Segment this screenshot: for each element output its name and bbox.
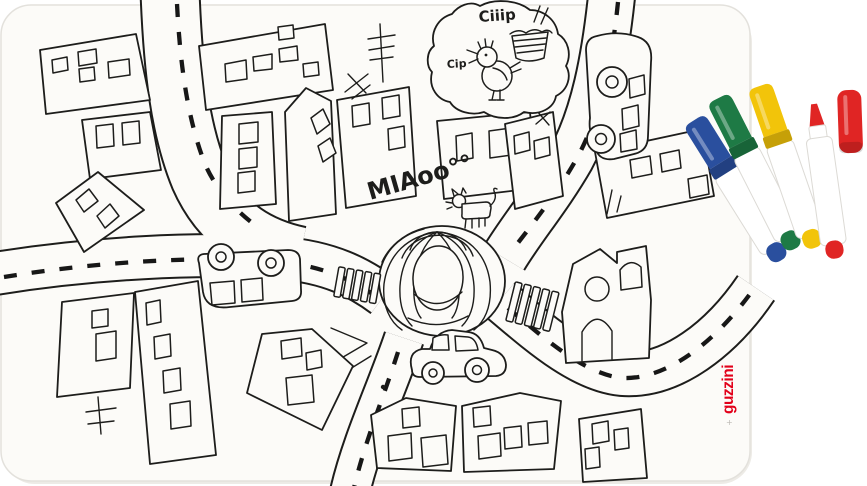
building bbox=[462, 393, 561, 472]
marker-tip bbox=[807, 103, 825, 127]
car-icon bbox=[586, 33, 651, 159]
building bbox=[579, 409, 647, 482]
marker-cap-red bbox=[837, 90, 863, 154]
house bbox=[562, 246, 651, 363]
product-photo: Ciiip Cip MIAoo°° guzzini + bbox=[0, 0, 867, 486]
building bbox=[371, 398, 456, 471]
building bbox=[285, 88, 336, 221]
building bbox=[505, 112, 563, 209]
building bbox=[220, 112, 276, 209]
bird-call-soft-text: Cip bbox=[446, 57, 466, 71]
brand-logo: guzzini bbox=[720, 365, 737, 414]
bird-call-loud-text: Ciiip bbox=[478, 5, 517, 26]
roundabout-tree bbox=[379, 226, 505, 336]
building bbox=[82, 112, 161, 179]
scene: Ciiip Cip MIAoo°° guzzini + bbox=[0, 0, 867, 486]
brand-plus: + bbox=[726, 418, 733, 427]
building bbox=[57, 293, 134, 397]
car-icon bbox=[198, 244, 301, 307]
